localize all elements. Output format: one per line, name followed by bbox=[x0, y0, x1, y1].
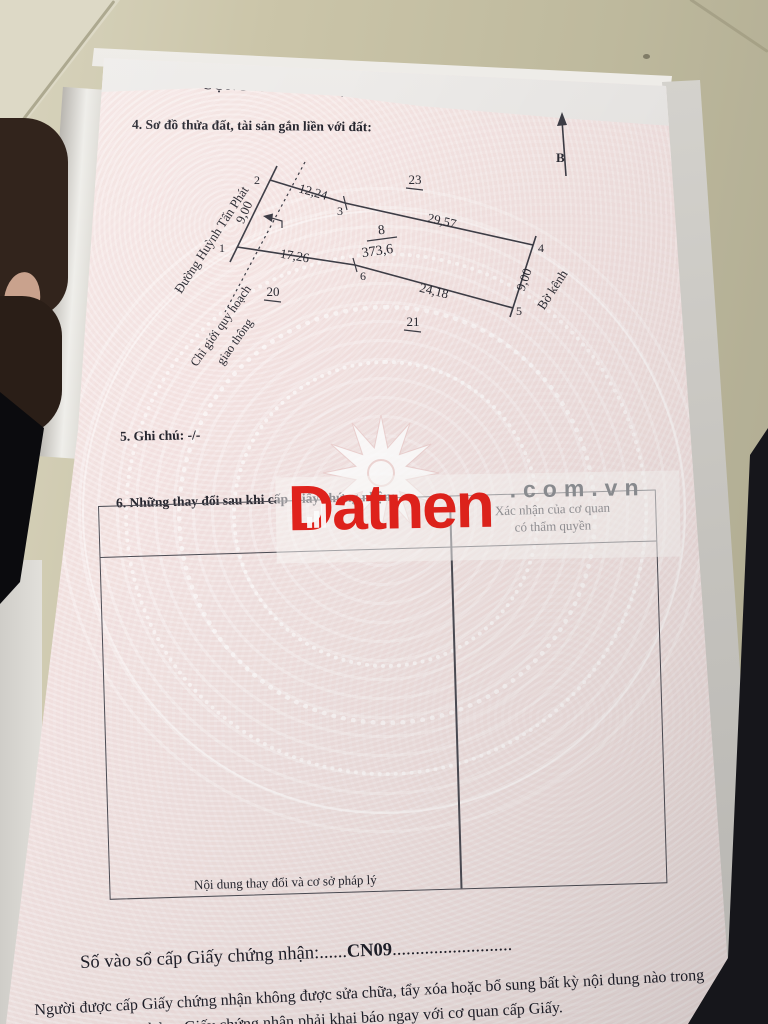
access-arrow-head bbox=[263, 214, 273, 223]
length-1-6: 17,26 bbox=[279, 246, 311, 266]
length-2-3: 12,24 bbox=[297, 180, 330, 203]
neighbor-21-underline bbox=[404, 330, 421, 332]
point-2: 2 bbox=[254, 173, 260, 187]
watermark-box: .com.vn Datnen bbox=[275, 470, 680, 563]
length-6-5: 24,18 bbox=[418, 280, 450, 302]
point-1: 1 bbox=[219, 241, 225, 255]
length-3-4: 29,57 bbox=[426, 210, 458, 231]
neighbor-parcel-21: 21 bbox=[407, 314, 420, 329]
registry-label: Số vào sổ cấp Giấy chứng nhận: bbox=[80, 943, 320, 973]
watermark-building-icon bbox=[307, 504, 326, 528]
road-label: Đường Huỳnh Tấn Phát bbox=[171, 183, 252, 296]
parcel-area: 373,6 bbox=[361, 242, 394, 261]
neighbor-23-underline bbox=[406, 188, 423, 190]
certificate-page: CỘNG HOÀ XÃ HỘI CHỦ NGHĨA VIỆT NAM 4. Sơ… bbox=[0, 0, 768, 1024]
section4-title: 4. Sơ đồ thửa đất, tài sản gắn liền với … bbox=[132, 117, 372, 136]
access-arrow-tail bbox=[271, 218, 282, 228]
point-5: 5 bbox=[516, 304, 522, 318]
length-4-5: 9,00 bbox=[513, 266, 535, 293]
parcel-number: 8 bbox=[377, 222, 386, 238]
registry-number-line: Số vào sổ cấp Giấy chứng nhận:......CN09… bbox=[80, 935, 513, 974]
north-arrow-head bbox=[557, 112, 567, 126]
table-col1-header: Nội dung thay đổi và cơ sở pháp lý bbox=[110, 869, 461, 895]
point-6: 6 bbox=[360, 269, 366, 283]
section5-label: 5. Ghi chú: bbox=[120, 428, 184, 444]
fraction-bar bbox=[367, 237, 397, 241]
neighbor-parcel-23: 23 bbox=[409, 172, 422, 187]
registry-number: CN09 bbox=[346, 940, 392, 962]
neighbor-parcel-20: 20 bbox=[267, 284, 280, 299]
section5-note: 5. Ghi chú: -/- bbox=[120, 427, 201, 444]
parcel-diagram: 2 1 3 4 5 6 12,24 29,57 17,26 24,18 9,00… bbox=[160, 140, 580, 400]
point-4: 4 bbox=[538, 241, 544, 255]
section5-value: -/- bbox=[187, 427, 200, 442]
neighbor-20-underline bbox=[264, 300, 281, 302]
registry-dots: .......................... bbox=[392, 935, 513, 960]
canal-label: Bờ kênh bbox=[534, 267, 571, 313]
floor-speck bbox=[643, 54, 650, 59]
point-3: 3 bbox=[337, 204, 343, 218]
watermark-domain: .com.vn bbox=[509, 474, 645, 503]
photo-of-land-certificate: CỘNG HOÀ XÃ HỘI CHỦ NGHĨA VIỆT NAM 4. Sơ… bbox=[0, 0, 768, 1024]
registry-dots: ...... bbox=[319, 942, 348, 963]
